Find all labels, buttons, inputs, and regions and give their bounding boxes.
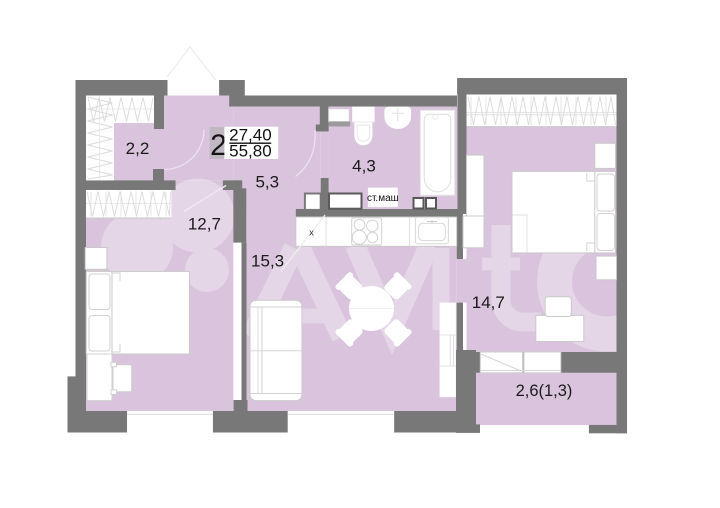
svg-text:х: х — [309, 228, 314, 239]
svg-text:2,2: 2,2 — [126, 139, 150, 158]
svg-text:55,80: 55,80 — [229, 142, 272, 161]
svg-text:2,6(1,3): 2,6(1,3) — [516, 382, 573, 400]
svg-text:15,3: 15,3 — [251, 252, 284, 271]
svg-text:2: 2 — [210, 129, 227, 162]
svg-text:12,7: 12,7 — [188, 215, 221, 234]
svg-text:14,7: 14,7 — [472, 293, 505, 312]
svg-text:5,3: 5,3 — [255, 173, 279, 192]
svg-text:ст.маш: ст.маш — [367, 193, 399, 204]
svg-text:4,3: 4,3 — [352, 157, 376, 176]
